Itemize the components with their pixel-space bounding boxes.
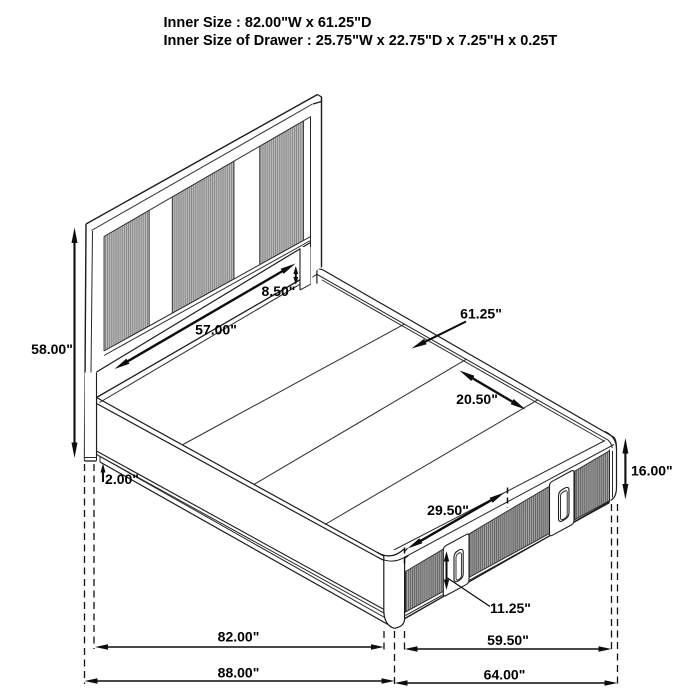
svg-text:Inner Size : 82.00"W x 61.25"D: Inner Size : 82.00"W x 61.25"D xyxy=(164,15,372,31)
svg-text:82.00": 82.00" xyxy=(218,629,260,645)
svg-text:29.50": 29.50" xyxy=(427,502,469,518)
svg-text:64.00": 64.00" xyxy=(484,667,526,683)
svg-text:58.00": 58.00" xyxy=(31,341,73,357)
svg-text:61.25": 61.25" xyxy=(460,306,502,322)
svg-text:8.50": 8.50" xyxy=(262,283,296,299)
svg-text:59.50": 59.50" xyxy=(487,632,529,648)
svg-text:2.00": 2.00" xyxy=(105,471,139,487)
svg-text:11.25": 11.25" xyxy=(490,600,531,616)
svg-text:57.00": 57.00" xyxy=(195,322,237,338)
svg-text:Inner Size of Drawer : 25.75"W: Inner Size of Drawer : 25.75"W x 22.75"D… xyxy=(164,33,558,49)
svg-text:88.00": 88.00" xyxy=(218,665,260,681)
svg-text:20.50": 20.50" xyxy=(456,391,498,407)
svg-text:16.00": 16.00" xyxy=(631,463,673,479)
